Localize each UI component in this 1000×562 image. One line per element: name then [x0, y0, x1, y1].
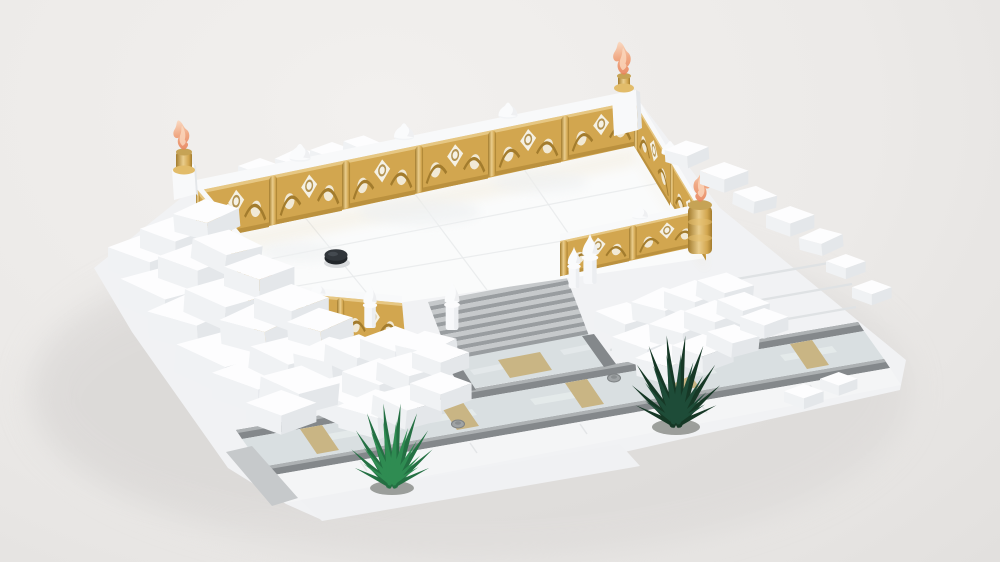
rail-dome-finial	[290, 144, 311, 162]
rail-dome-finial	[499, 103, 518, 119]
snow-brick	[766, 206, 814, 237]
snow-brick	[826, 254, 866, 279]
road-stud	[608, 374, 621, 382]
corner-flame-left	[172, 119, 192, 151]
floor-reflection	[360, 199, 480, 225]
lego-render	[0, 0, 1000, 562]
render-canvas	[0, 0, 1000, 562]
snow-brick	[732, 184, 778, 216]
corner-bird-top	[612, 41, 632, 76]
road-stud	[452, 420, 465, 428]
snow-brick	[852, 280, 892, 305]
corner-post-top	[612, 41, 642, 136]
rail-dome-finial	[394, 123, 414, 140]
floor-reflection	[492, 171, 588, 193]
corner-post-left	[172, 119, 198, 200]
